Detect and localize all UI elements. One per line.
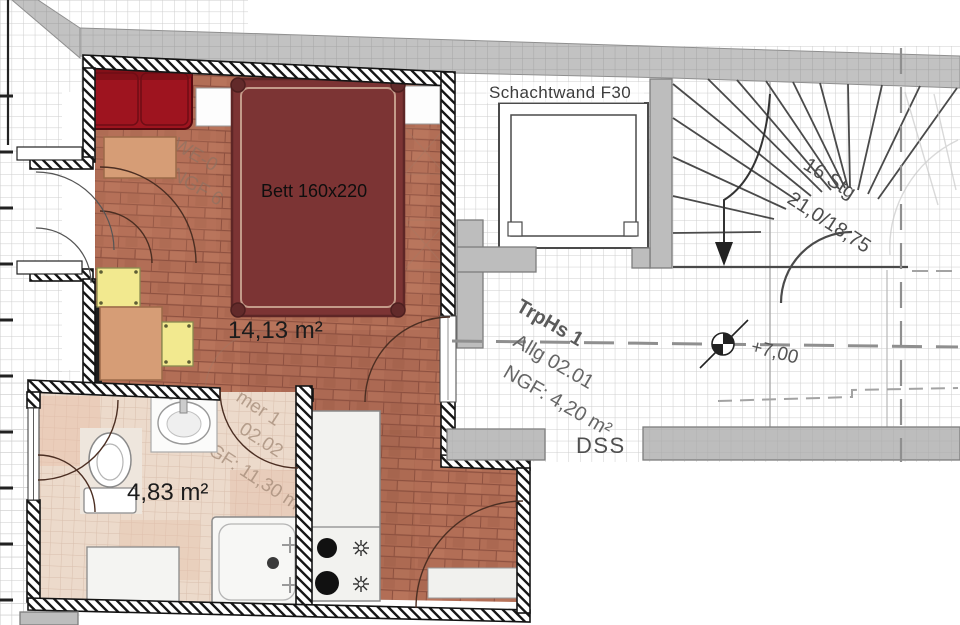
kitchen-counter	[308, 411, 380, 601]
floorplan-screenshot: WE-0 NGF 6 mer 1 02.02 NGF: 11,30 m	[0, 0, 960, 625]
dining-table	[100, 307, 162, 380]
nightstand-right	[404, 86, 440, 124]
shower	[212, 517, 302, 607]
balcony-sill-bottom	[17, 261, 82, 274]
wall-bath-right	[296, 386, 312, 605]
coffee-table	[104, 137, 176, 178]
bed-label: Bett 160x220	[261, 181, 367, 201]
dss-label: DSS	[576, 433, 626, 458]
sofa	[87, 67, 192, 129]
elevator-shaft	[499, 103, 648, 248]
bath-cabinet	[87, 547, 179, 607]
wall-bath-left-top	[27, 392, 40, 408]
cooktop-burner	[315, 571, 339, 595]
wall-left-mid	[83, 279, 95, 391]
cooktop-burner	[317, 538, 337, 558]
floorplan-canvas: WE-0 NGF 6 mer 1 02.02 NGF: 11,30 m	[0, 0, 960, 625]
doormat	[428, 568, 518, 598]
wall-left-upper	[83, 68, 95, 162]
chair	[162, 322, 193, 366]
wall-stub-bottom-left	[20, 612, 78, 625]
wall-bath-left-bottom	[27, 500, 40, 602]
shaft-wall-label: Schachtwand F30	[489, 83, 631, 102]
wall-right-upper	[441, 72, 455, 318]
drain-icon	[267, 557, 279, 569]
bed: Bett 160x220	[231, 78, 405, 317]
main-room-area-label: 14,13 m²	[228, 317, 323, 344]
chair	[97, 268, 140, 307]
nightstand-left	[196, 88, 232, 126]
bathroom-area-label: 4,83 m²	[127, 479, 208, 506]
balcony-sill-top	[17, 147, 82, 160]
wall-right-lowest	[517, 468, 530, 613]
